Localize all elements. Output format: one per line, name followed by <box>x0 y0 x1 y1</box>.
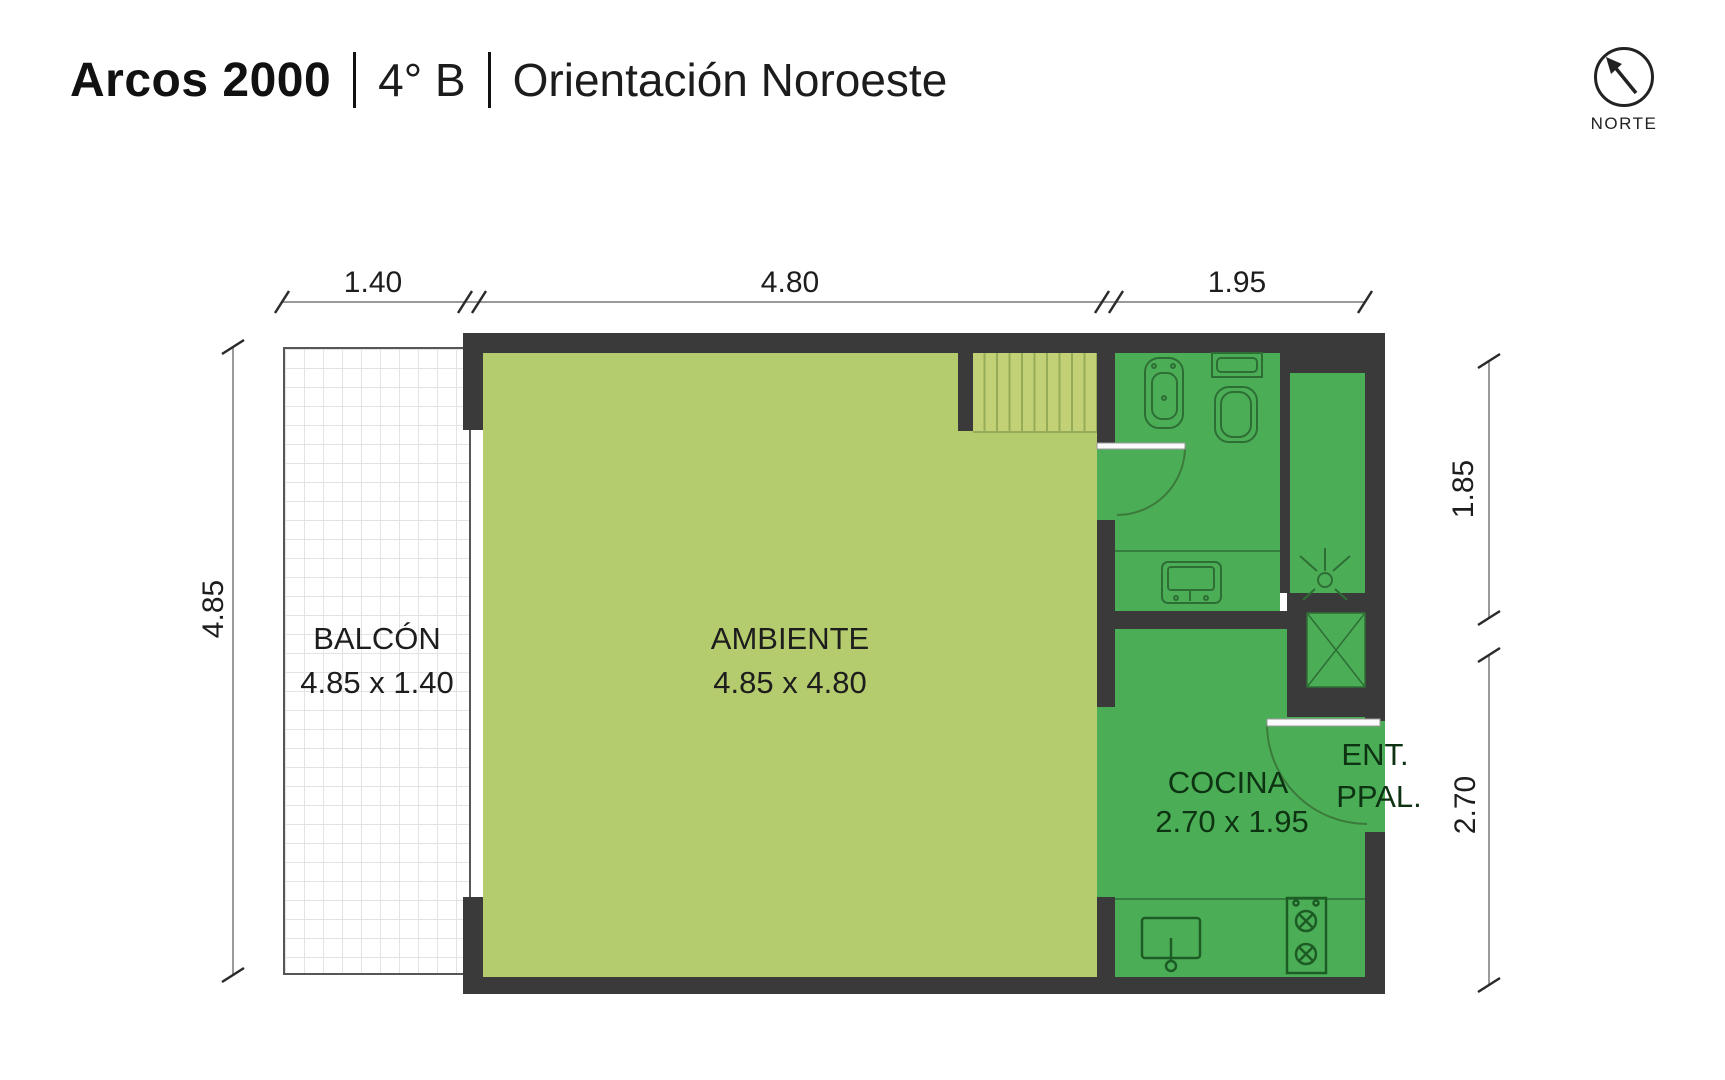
dim-label-kitchen-height: 2.70 <box>1449 745 1483 865</box>
entrance-label-line2: PPAL. <box>1319 780 1439 814</box>
north-arrow-icon <box>1606 57 1636 93</box>
dim-label-living-width: 4.80 <box>730 266 850 300</box>
floor-plan-page: Arcos 2000 4° B Orientación Noroeste NOR… <box>0 0 1725 1080</box>
living-size-label: 4.85 x 4.80 <box>690 666 890 700</box>
living-label: AMBIENTE <box>690 622 890 656</box>
shaft-x-icon <box>1307 613 1365 687</box>
dim-label-service-width: 1.95 <box>1177 266 1297 300</box>
kitchen-sink-icon <box>1142 918 1200 971</box>
bathroom-door-arc <box>1117 447 1185 515</box>
balcony-size-label: 4.85 x 1.40 <box>277 666 477 700</box>
dimension-line-right-upper <box>1478 354 1500 625</box>
bidet-icon <box>1145 358 1183 428</box>
dim-label-bath-height: 1.85 <box>1447 429 1481 549</box>
dim-label-left-height: 4.85 <box>197 549 231 669</box>
bathroom-door-leaf <box>1097 443 1185 449</box>
balcony-label: BALCÓN <box>277 622 477 656</box>
entrance-label-line1: ENT. <box>1315 738 1435 772</box>
vanity-sink-icon <box>1162 562 1221 603</box>
entry-door-leaf <box>1267 719 1380 726</box>
dim-label-balcony-width: 1.40 <box>313 266 433 300</box>
bathroom-door <box>1097 443 1185 515</box>
kitchen-label: COCINA <box>1128 766 1328 800</box>
toilet-icon <box>1212 353 1262 442</box>
shower-icon <box>1300 548 1350 600</box>
stove-icon <box>1287 898 1326 973</box>
kitchen-size-label: 2.70 x 1.95 <box>1132 805 1332 839</box>
